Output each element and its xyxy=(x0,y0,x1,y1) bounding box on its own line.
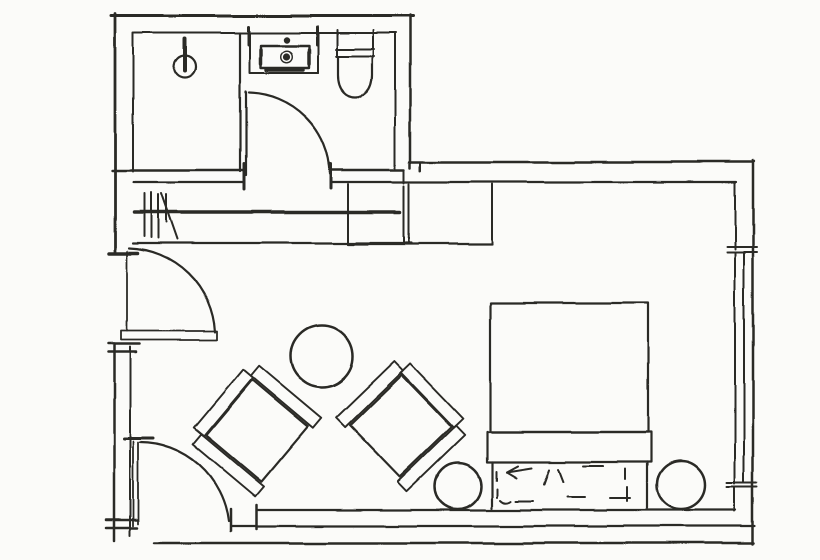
floor-plan-svg xyxy=(0,0,820,560)
sink-faucet-dot xyxy=(284,37,290,43)
sink-drain-dot xyxy=(283,53,290,60)
floor-plan-image xyxy=(0,0,820,560)
